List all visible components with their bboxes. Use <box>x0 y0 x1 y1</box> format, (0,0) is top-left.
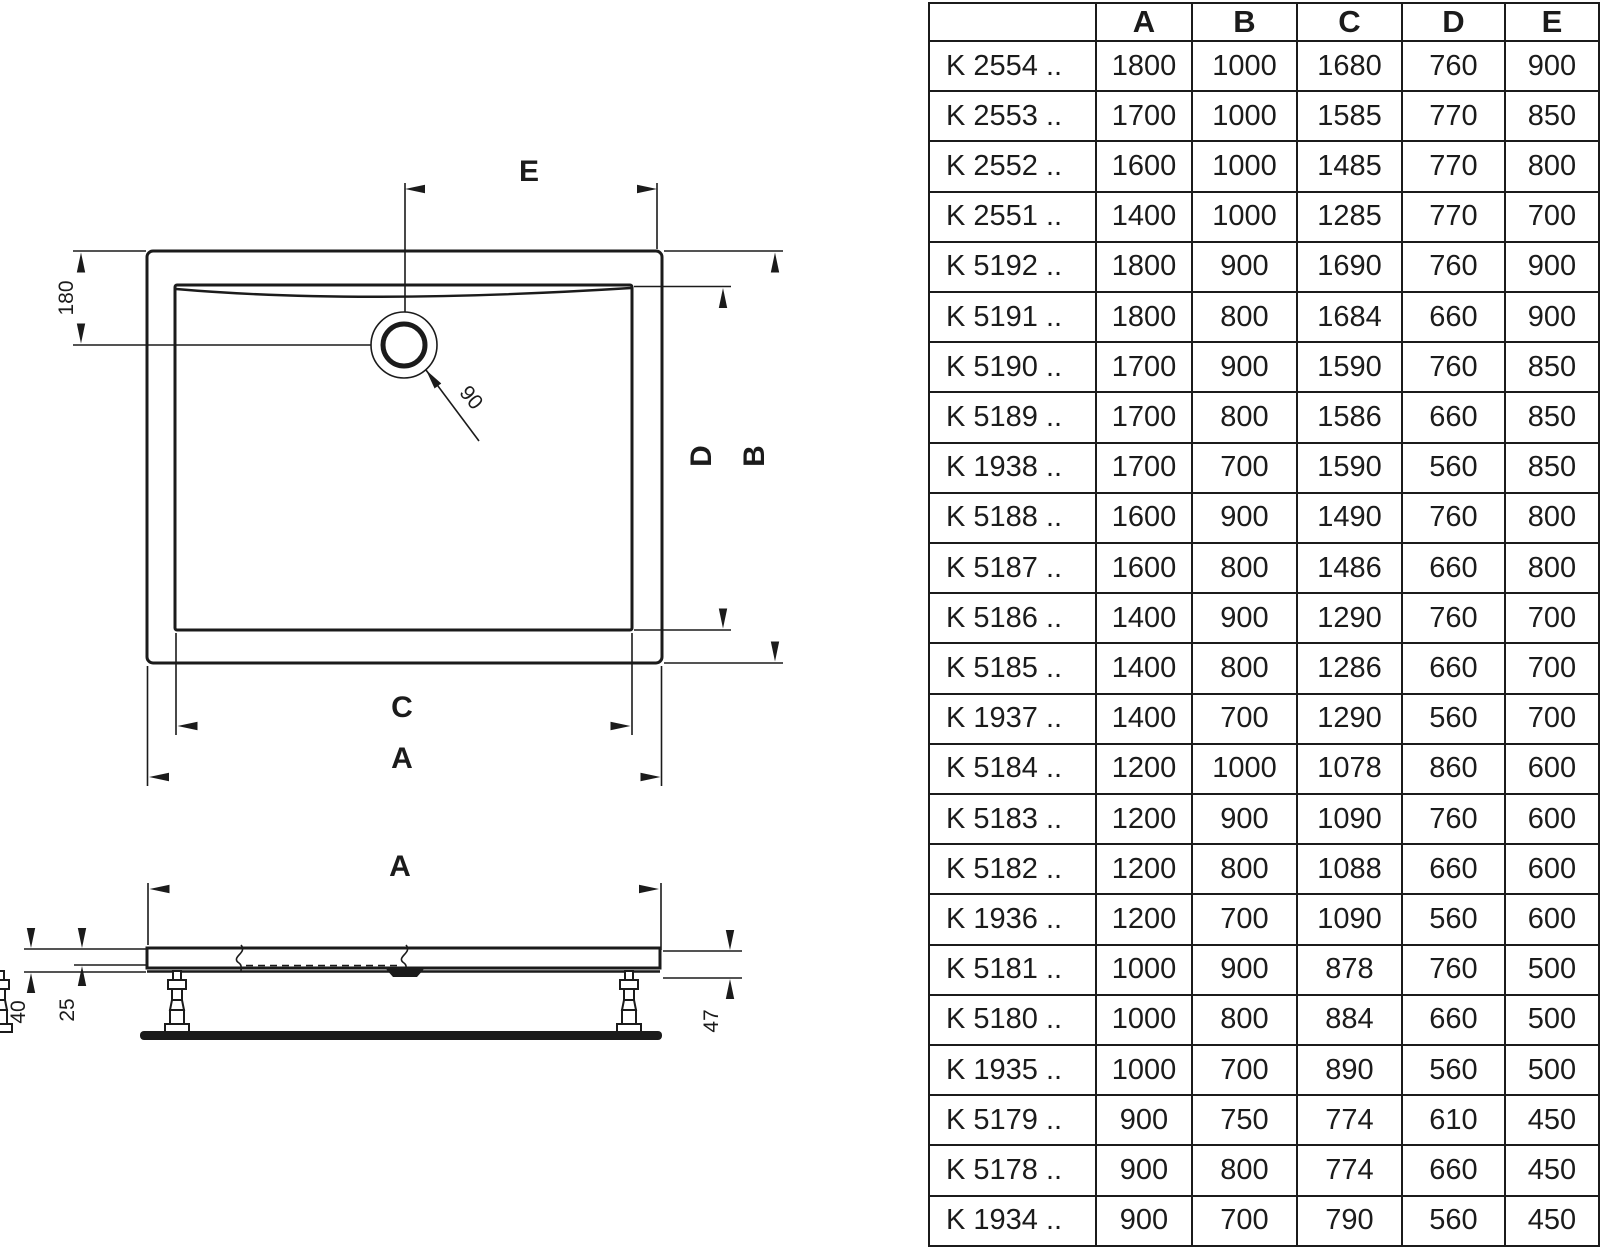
row-label: K 5182 .. <box>929 844 1096 894</box>
row-label: K 1936 .. <box>929 894 1096 944</box>
table-row: K 1938 .. 1700 700 1590 560 850 <box>929 443 1599 493</box>
row-label: K 2551 .. <box>929 192 1096 242</box>
dim-cell: 1000 <box>1192 192 1297 242</box>
dim-cell: 900 <box>1505 292 1599 342</box>
side-view: A 40 25 47 <box>0 850 742 1040</box>
dim-cell: 900 <box>1192 794 1297 844</box>
table-row: K 2552 .. 1600 1000 1485 770 800 <box>929 141 1599 191</box>
dim-cell: 1000 <box>1192 141 1297 191</box>
dim-cell: 1800 <box>1096 41 1192 91</box>
dim-cell: 884 <box>1297 995 1402 1045</box>
adjustable-foot <box>165 971 189 1032</box>
table-row: K 5181 .. 1000 900 878 760 500 <box>929 945 1599 995</box>
dim-label-E: E <box>519 155 539 188</box>
dim-cell: 760 <box>1402 41 1505 91</box>
dim-cell: 1090 <box>1297 794 1402 844</box>
dim-cell: 660 <box>1402 995 1505 1045</box>
column-header-A: A <box>1096 3 1192 41</box>
dim-cell: 1485 <box>1297 141 1402 191</box>
dim-cell: 770 <box>1402 91 1505 141</box>
dim-cell: 1285 <box>1297 192 1402 242</box>
dim-label-B: B <box>738 445 771 467</box>
table-row: K 5192 .. 1800 900 1690 760 900 <box>929 242 1599 292</box>
dim-label-90: 90 <box>455 381 488 414</box>
dim-cell: 500 <box>1505 995 1599 1045</box>
dim-cell: 800 <box>1192 392 1297 442</box>
table-row: K 5185 .. 1400 800 1286 660 700 <box>929 643 1599 693</box>
table-row: K 1934 .. 900 700 790 560 450 <box>929 1196 1599 1246</box>
dim-cell: 700 <box>1505 643 1599 693</box>
dim-cell: 450 <box>1505 1196 1599 1246</box>
table-row: K 5180 .. 1000 800 884 660 500 <box>929 995 1599 1045</box>
dim-cell: 560 <box>1402 894 1505 944</box>
table-row: K 5178 .. 900 800 774 660 450 <box>929 1145 1599 1195</box>
table-row: K 5189 .. 1700 800 1586 660 850 <box>929 392 1599 442</box>
row-label: K 1937 .. <box>929 694 1096 744</box>
dim-cell: 1690 <box>1297 242 1402 292</box>
dim-cell: 1078 <box>1297 744 1402 794</box>
floor-line <box>140 1031 662 1040</box>
top-view: 180 E 90 D B C <box>55 155 783 786</box>
dim-cell: 500 <box>1505 1045 1599 1095</box>
dim-cell: 760 <box>1402 342 1505 392</box>
dim-cell: 1200 <box>1096 894 1192 944</box>
dim-cell: 750 <box>1192 1095 1297 1145</box>
dim-cell: 1600 <box>1096 543 1192 593</box>
dim-cell: 878 <box>1297 945 1402 995</box>
dim-cell: 560 <box>1402 694 1505 744</box>
table-row: K 1935 .. 1000 700 890 560 500 <box>929 1045 1599 1095</box>
dim-cell: 1290 <box>1297 593 1402 643</box>
table-row: K 5182 .. 1200 800 1088 660 600 <box>929 844 1599 894</box>
dim-cell: 1800 <box>1096 292 1192 342</box>
dim-cell: 760 <box>1402 945 1505 995</box>
dim-cell: 600 <box>1505 894 1599 944</box>
dim-cell: 1680 <box>1297 41 1402 91</box>
dim-cell: 890 <box>1297 1045 1402 1095</box>
dim-cell: 790 <box>1297 1196 1402 1246</box>
dim-cell: 774 <box>1297 1095 1402 1145</box>
dim-cell: 770 <box>1402 141 1505 191</box>
dim-cell: 1486 <box>1297 543 1402 593</box>
dim-label-40: 40 <box>7 1000 30 1023</box>
row-label: K 1938 .. <box>929 443 1096 493</box>
dim-cell: 700 <box>1192 894 1297 944</box>
dim-cell: 900 <box>1192 342 1297 392</box>
dim-cell: 900 <box>1192 945 1297 995</box>
dim-cell: 850 <box>1505 392 1599 442</box>
dim-cell: 1200 <box>1096 844 1192 894</box>
dim-cell: 800 <box>1192 643 1297 693</box>
dim-cell: 1700 <box>1096 342 1192 392</box>
table-row: K 5183 .. 1200 900 1090 760 600 <box>929 794 1599 844</box>
dim-cell: 760 <box>1402 794 1505 844</box>
dim-cell: 1290 <box>1297 694 1402 744</box>
dim-cell: 660 <box>1402 543 1505 593</box>
dim-cell: 1000 <box>1192 744 1297 794</box>
row-label: K 2552 .. <box>929 141 1096 191</box>
tray-inner-edge <box>175 285 632 630</box>
dim-cell: 1200 <box>1096 744 1192 794</box>
row-label: K 5181 .. <box>929 945 1096 995</box>
row-label: K 5179 .. <box>929 1095 1096 1145</box>
dim-cell: 1700 <box>1096 443 1192 493</box>
dim-cell: 560 <box>1402 1045 1505 1095</box>
dim-cell: 660 <box>1402 643 1505 693</box>
dim-label-C: C <box>391 691 413 724</box>
dim-cell: 900 <box>1096 1095 1192 1145</box>
dim-cell: 700 <box>1192 1045 1297 1095</box>
row-label: K 5190 .. <box>929 342 1096 392</box>
dim-cell: 660 <box>1402 392 1505 442</box>
dim-cell: 1000 <box>1096 1045 1192 1095</box>
row-label: K 5184 .. <box>929 744 1096 794</box>
dim-cell: 450 <box>1505 1145 1599 1195</box>
table-row: K 5184 .. 1200 1000 1078 860 600 <box>929 744 1599 794</box>
dim-cell: 1400 <box>1096 694 1192 744</box>
dim-cell: 900 <box>1192 493 1297 543</box>
row-label: K 2554 .. <box>929 41 1096 91</box>
tray-slab <box>147 948 660 968</box>
dim-cell: 660 <box>1402 1145 1505 1195</box>
row-label: K 5192 .. <box>929 242 1096 292</box>
dim-cell: 850 <box>1505 443 1599 493</box>
dim-label-180: 180 <box>55 280 78 315</box>
dim-cell: 1200 <box>1096 794 1192 844</box>
dim-cell: 770 <box>1402 192 1505 242</box>
technical-drawing: 180 E 90 D B C <box>0 0 905 1249</box>
dim-label-47: 47 <box>700 1009 723 1032</box>
table-row: K 5190 .. 1700 900 1590 760 850 <box>929 342 1599 392</box>
dim-cell: 850 <box>1505 91 1599 141</box>
dim-cell: 800 <box>1505 543 1599 593</box>
table-header-row: A B C D E <box>929 3 1599 41</box>
dim-cell: 1600 <box>1096 493 1192 543</box>
dim-cell: 600 <box>1505 794 1599 844</box>
dim-cell: 1490 <box>1297 493 1402 543</box>
dim-cell: 560 <box>1402 443 1505 493</box>
dim-cell: 1400 <box>1096 643 1192 693</box>
dim-cell: 1700 <box>1096 91 1192 141</box>
column-header-C: C <box>1297 3 1402 41</box>
dim-cell: 900 <box>1505 242 1599 292</box>
dim-cell: 800 <box>1505 141 1599 191</box>
dim-cell: 1700 <box>1096 392 1192 442</box>
dim-cell: 610 <box>1402 1095 1505 1145</box>
dim-cell: 560 <box>1402 1196 1505 1246</box>
row-label: K 5185 .. <box>929 643 1096 693</box>
drain-housing <box>386 969 424 977</box>
dim-cell: 860 <box>1402 744 1505 794</box>
dim-cell: 900 <box>1192 242 1297 292</box>
dim-cell: 760 <box>1402 242 1505 292</box>
table-row: K 2553 .. 1700 1000 1585 770 850 <box>929 91 1599 141</box>
dim-cell: 760 <box>1402 593 1505 643</box>
table-row: K 5191 .. 1800 800 1684 660 900 <box>929 292 1599 342</box>
dim-cell: 850 <box>1505 342 1599 392</box>
dim-cell: 500 <box>1505 945 1599 995</box>
dim-cell: 1400 <box>1096 192 1192 242</box>
dim-cell: 700 <box>1192 443 1297 493</box>
table-row: K 1937 .. 1400 700 1290 560 700 <box>929 694 1599 744</box>
row-label: K 5188 .. <box>929 493 1096 543</box>
row-label: K 5180 .. <box>929 995 1096 1045</box>
dim-label-D: D <box>685 445 718 467</box>
dim-cell: 1000 <box>1192 91 1297 141</box>
dim-cell: 800 <box>1192 995 1297 1045</box>
dim-cell: 450 <box>1505 1095 1599 1145</box>
tray-slope-curve <box>176 288 631 297</box>
dim-cell: 1586 <box>1297 392 1402 442</box>
dimension-sheet: 180 E 90 D B C <box>0 0 1600 1249</box>
dim-cell: 1800 <box>1096 242 1192 292</box>
dim-label-25: 25 <box>56 998 79 1021</box>
row-label: K 1934 .. <box>929 1196 1096 1246</box>
drain-ring <box>383 324 425 366</box>
dim-cell: 660 <box>1402 844 1505 894</box>
dim-label-A-side: A <box>389 850 411 883</box>
dim-cell: 700 <box>1192 694 1297 744</box>
table-row: K 2551 .. 1400 1000 1285 770 700 <box>929 192 1599 242</box>
dim-cell: 1684 <box>1297 292 1402 342</box>
row-label: K 5187 .. <box>929 543 1096 593</box>
table-row: K 2554 .. 1800 1000 1680 760 900 <box>929 41 1599 91</box>
row-label: K 5189 .. <box>929 392 1096 442</box>
column-header-B: B <box>1192 3 1297 41</box>
row-label: K 5178 .. <box>929 1145 1096 1195</box>
column-header-D: D <box>1402 3 1505 41</box>
dim-cell: 1000 <box>1096 945 1192 995</box>
dim-cell: 600 <box>1505 744 1599 794</box>
dim-cell: 900 <box>1192 593 1297 643</box>
dim-cell: 700 <box>1505 593 1599 643</box>
row-label: K 5191 .. <box>929 292 1096 342</box>
column-header-model <box>929 3 1096 41</box>
row-label: K 1935 .. <box>929 1045 1096 1095</box>
table-row: K 1936 .. 1200 700 1090 560 600 <box>929 894 1599 944</box>
dim-cell: 660 <box>1402 292 1505 342</box>
dim-cell: 760 <box>1402 493 1505 543</box>
dim-cell: 1590 <box>1297 443 1402 493</box>
dim-cell: 700 <box>1505 192 1599 242</box>
dim-cell: 1400 <box>1096 593 1192 643</box>
dim-cell: 900 <box>1096 1145 1192 1195</box>
dim-cell: 1000 <box>1192 41 1297 91</box>
dim-cell: 1600 <box>1096 141 1192 191</box>
row-label: K 2553 .. <box>929 91 1096 141</box>
column-header-E: E <box>1505 3 1599 41</box>
table-row: K 5188 .. 1600 900 1490 760 800 <box>929 493 1599 543</box>
dim-cell: 800 <box>1192 1145 1297 1195</box>
row-label: K 5186 .. <box>929 593 1096 643</box>
dim-cell: 700 <box>1505 694 1599 744</box>
table-row: K 5186 .. 1400 900 1290 760 700 <box>929 593 1599 643</box>
dim-cell: 700 <box>1192 1196 1297 1246</box>
dim-cell: 800 <box>1192 292 1297 342</box>
dim-cell: 900 <box>1505 41 1599 91</box>
dim-cell: 1286 <box>1297 643 1402 693</box>
table-row: K 5179 .. 900 750 774 610 450 <box>929 1095 1599 1145</box>
dimensions-table: A B C D E K 2554 .. 1800 1000 1680 760 9… <box>928 2 1600 1247</box>
row-label: K 5183 .. <box>929 794 1096 844</box>
dim-cell: 900 <box>1096 1196 1192 1246</box>
dim-cell: 774 <box>1297 1145 1402 1195</box>
dim-cell: 1585 <box>1297 91 1402 141</box>
dim-cell: 1088 <box>1297 844 1402 894</box>
table-body: K 2554 .. 1800 1000 1680 760 900 K 2553 … <box>929 41 1599 1246</box>
table-row: K 5187 .. 1600 800 1486 660 800 <box>929 543 1599 593</box>
dim-cell: 1090 <box>1297 894 1402 944</box>
adjustable-foot <box>617 971 641 1032</box>
dim-cell: 1000 <box>1096 995 1192 1045</box>
dim-cell: 1590 <box>1297 342 1402 392</box>
dim-cell: 600 <box>1505 844 1599 894</box>
dim-label-A: A <box>391 742 413 775</box>
dim-cell: 800 <box>1192 844 1297 894</box>
dim-cell: 800 <box>1505 493 1599 543</box>
dim-cell: 800 <box>1192 543 1297 593</box>
